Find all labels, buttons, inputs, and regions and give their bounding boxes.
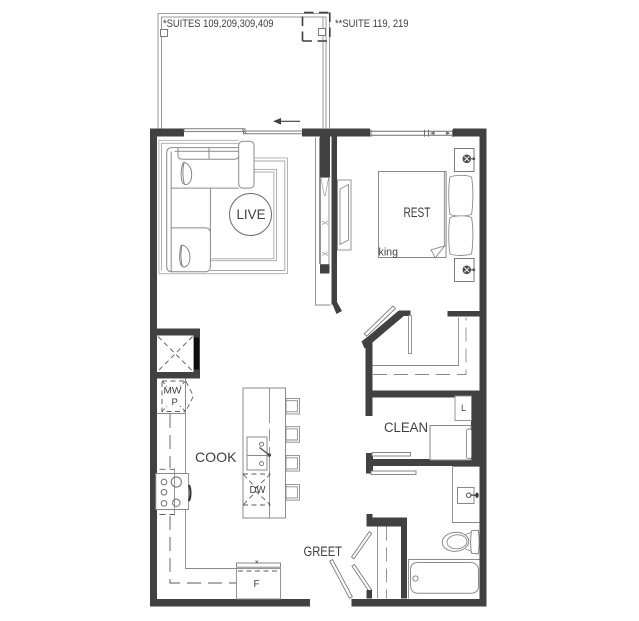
svg-text:P: P bbox=[172, 397, 178, 408]
svg-text:DW: DW bbox=[250, 484, 266, 496]
svg-text:MW: MW bbox=[164, 386, 182, 397]
svg-text:GREET: GREET bbox=[304, 544, 343, 559]
svg-text:**SUITE 119, 219: **SUITE 119, 219 bbox=[335, 18, 409, 30]
svg-text:king: king bbox=[379, 247, 399, 259]
svg-text:COOK: COOK bbox=[195, 449, 237, 465]
svg-text:LIVE: LIVE bbox=[237, 207, 266, 222]
svg-text:L: L bbox=[461, 403, 466, 413]
svg-text:REST: REST bbox=[404, 205, 431, 220]
svg-text:*SUITES 109,209,309,409: *SUITES 109,209,309,409 bbox=[163, 18, 274, 30]
svg-text:F: F bbox=[254, 579, 260, 590]
svg-text:CLEAN: CLEAN bbox=[384, 420, 428, 435]
